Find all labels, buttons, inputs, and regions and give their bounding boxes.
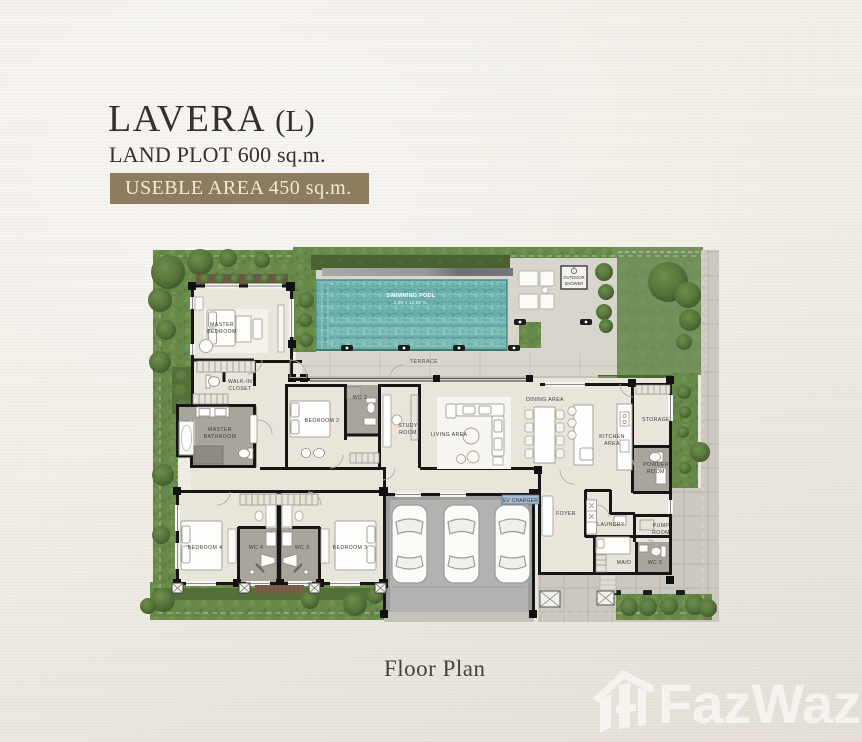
- svg-text:PUMP: PUMP: [653, 523, 670, 529]
- svg-text:BEDROOM 4: BEDROOM 4: [188, 545, 223, 551]
- svg-text:BEDROOM: BEDROOM: [207, 329, 237, 335]
- svg-text:DINING AREA: DINING AREA: [526, 397, 564, 403]
- svg-text:SWIMMING POOL: SWIMMING POOL: [386, 293, 435, 299]
- svg-text:OUTDOOR: OUTDOOR: [563, 275, 584, 280]
- svg-text:WC 3: WC 3: [295, 545, 310, 551]
- svg-text:AREA: AREA: [604, 441, 620, 447]
- svg-text:FazWaz: FazWaz: [658, 672, 861, 735]
- svg-text:MASTER: MASTER: [208, 427, 232, 433]
- svg-text:LIVING AREA: LIVING AREA: [431, 432, 468, 438]
- svg-text:BEDROOM 3: BEDROOM 3: [333, 545, 368, 551]
- svg-text:WC 2: WC 2: [353, 395, 368, 401]
- svg-text:BEDROOM 2: BEDROOM 2: [305, 418, 340, 424]
- svg-text:EV CHARGER: EV CHARGER: [503, 498, 538, 504]
- svg-text:3.00 x 10.00 m.: 3.00 x 10.00 m.: [394, 300, 429, 305]
- svg-text:WC 5: WC 5: [648, 560, 663, 566]
- svg-text:MAID: MAID: [617, 560, 632, 566]
- svg-text:CLOSET: CLOSET: [228, 386, 252, 392]
- svg-text:WALK-IN: WALK-IN: [228, 379, 252, 385]
- svg-text:BATHROOM: BATHROOM: [204, 434, 237, 440]
- svg-text:LAUNDRY: LAUNDRY: [597, 522, 625, 528]
- svg-text:MASTER: MASTER: [210, 322, 234, 328]
- svg-text:STUDY: STUDY: [398, 423, 418, 429]
- svg-text:ROOM: ROOM: [647, 469, 665, 475]
- svg-text:SHOWER: SHOWER: [565, 281, 584, 286]
- svg-text:ROOM: ROOM: [652, 530, 670, 536]
- svg-text:FOYER: FOYER: [556, 511, 576, 517]
- svg-text:POWDER: POWDER: [643, 462, 669, 468]
- svg-text:STORAGE: STORAGE: [642, 417, 670, 423]
- svg-text:WC 4: WC 4: [249, 545, 264, 551]
- svg-text:ROOM: ROOM: [399, 430, 417, 436]
- svg-text:TERRACE: TERRACE: [410, 359, 438, 365]
- svg-text:KITCHEN: KITCHEN: [599, 434, 625, 440]
